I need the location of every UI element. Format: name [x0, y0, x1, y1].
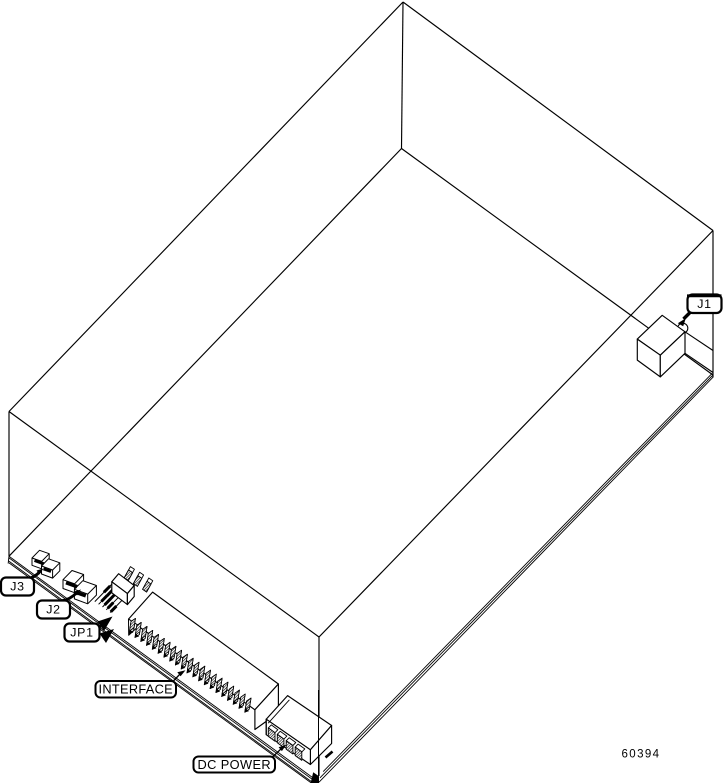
svg-text:DC POWER: DC POWER [197, 757, 271, 772]
svg-text:J1: J1 [697, 297, 712, 311]
svg-text:INTERFACE: INTERFACE [98, 682, 173, 697]
svg-text:J3: J3 [10, 580, 25, 594]
svg-text:60394: 60394 [622, 749, 661, 761]
svg-text:JP1: JP1 [70, 626, 93, 640]
svg-text:J2: J2 [46, 603, 61, 617]
